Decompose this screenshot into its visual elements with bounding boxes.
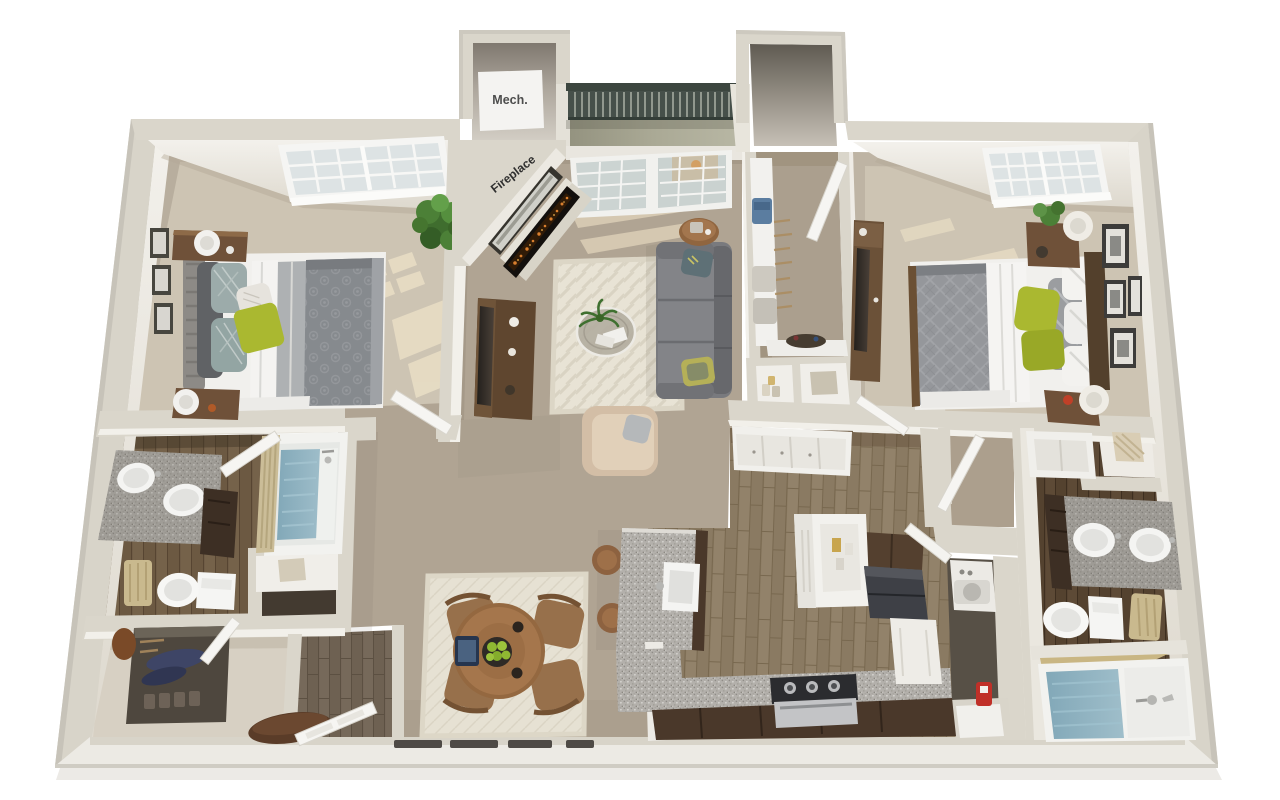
svg-text:Mech.: Mech.	[492, 93, 527, 107]
